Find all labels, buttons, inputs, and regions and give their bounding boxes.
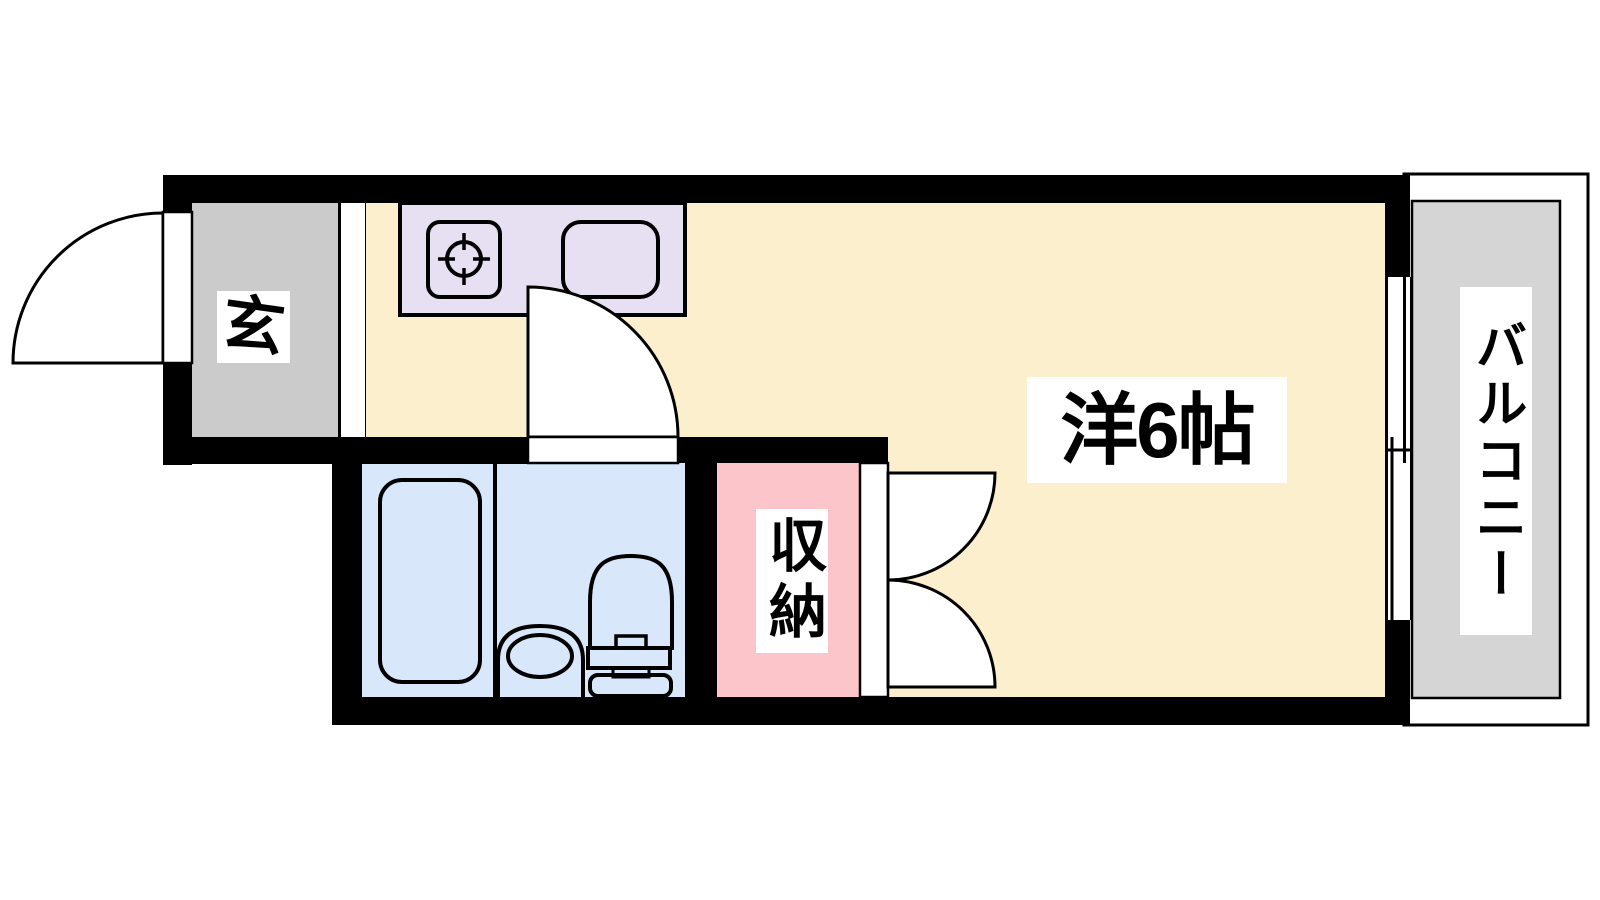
entrance-label-text: 玄 <box>218 292 288 362</box>
wall-bathroom-closet <box>685 463 717 697</box>
wall-bottom <box>332 697 1410 725</box>
bathroom-floor <box>362 463 685 697</box>
entrance-label: 玄 <box>217 291 290 363</box>
bathroom-door-opening <box>528 437 678 463</box>
sliding-window <box>1385 277 1413 620</box>
entrance-door-opening <box>163 212 192 363</box>
wall-right-upper <box>1385 175 1410 277</box>
wall-left-upper <box>163 175 192 213</box>
balcony-label-text: バルコニー <box>1470 319 1522 604</box>
entrance-door-swing <box>13 213 163 363</box>
balcony-label: バルコニー <box>1460 287 1532 635</box>
closet-label-text: 収納 <box>763 515 821 647</box>
closet-label: 収納 <box>756 509 828 653</box>
living-room-label: 洋6帖 <box>1027 377 1287 483</box>
floorplan-drawing <box>0 0 1600 900</box>
entrance-kitchen-opening <box>338 203 368 437</box>
wall-top <box>163 175 1410 203</box>
wall-bathroom-left <box>332 437 362 725</box>
wall-right-lower <box>1385 620 1410 725</box>
living-room-label-text: 洋6帖 <box>1060 391 1253 469</box>
closet-door-frame <box>860 463 888 697</box>
wall-mid-right <box>678 437 888 463</box>
floorplan-canvas: 玄 洋6帖 収納 バルコニー <box>0 0 1600 900</box>
